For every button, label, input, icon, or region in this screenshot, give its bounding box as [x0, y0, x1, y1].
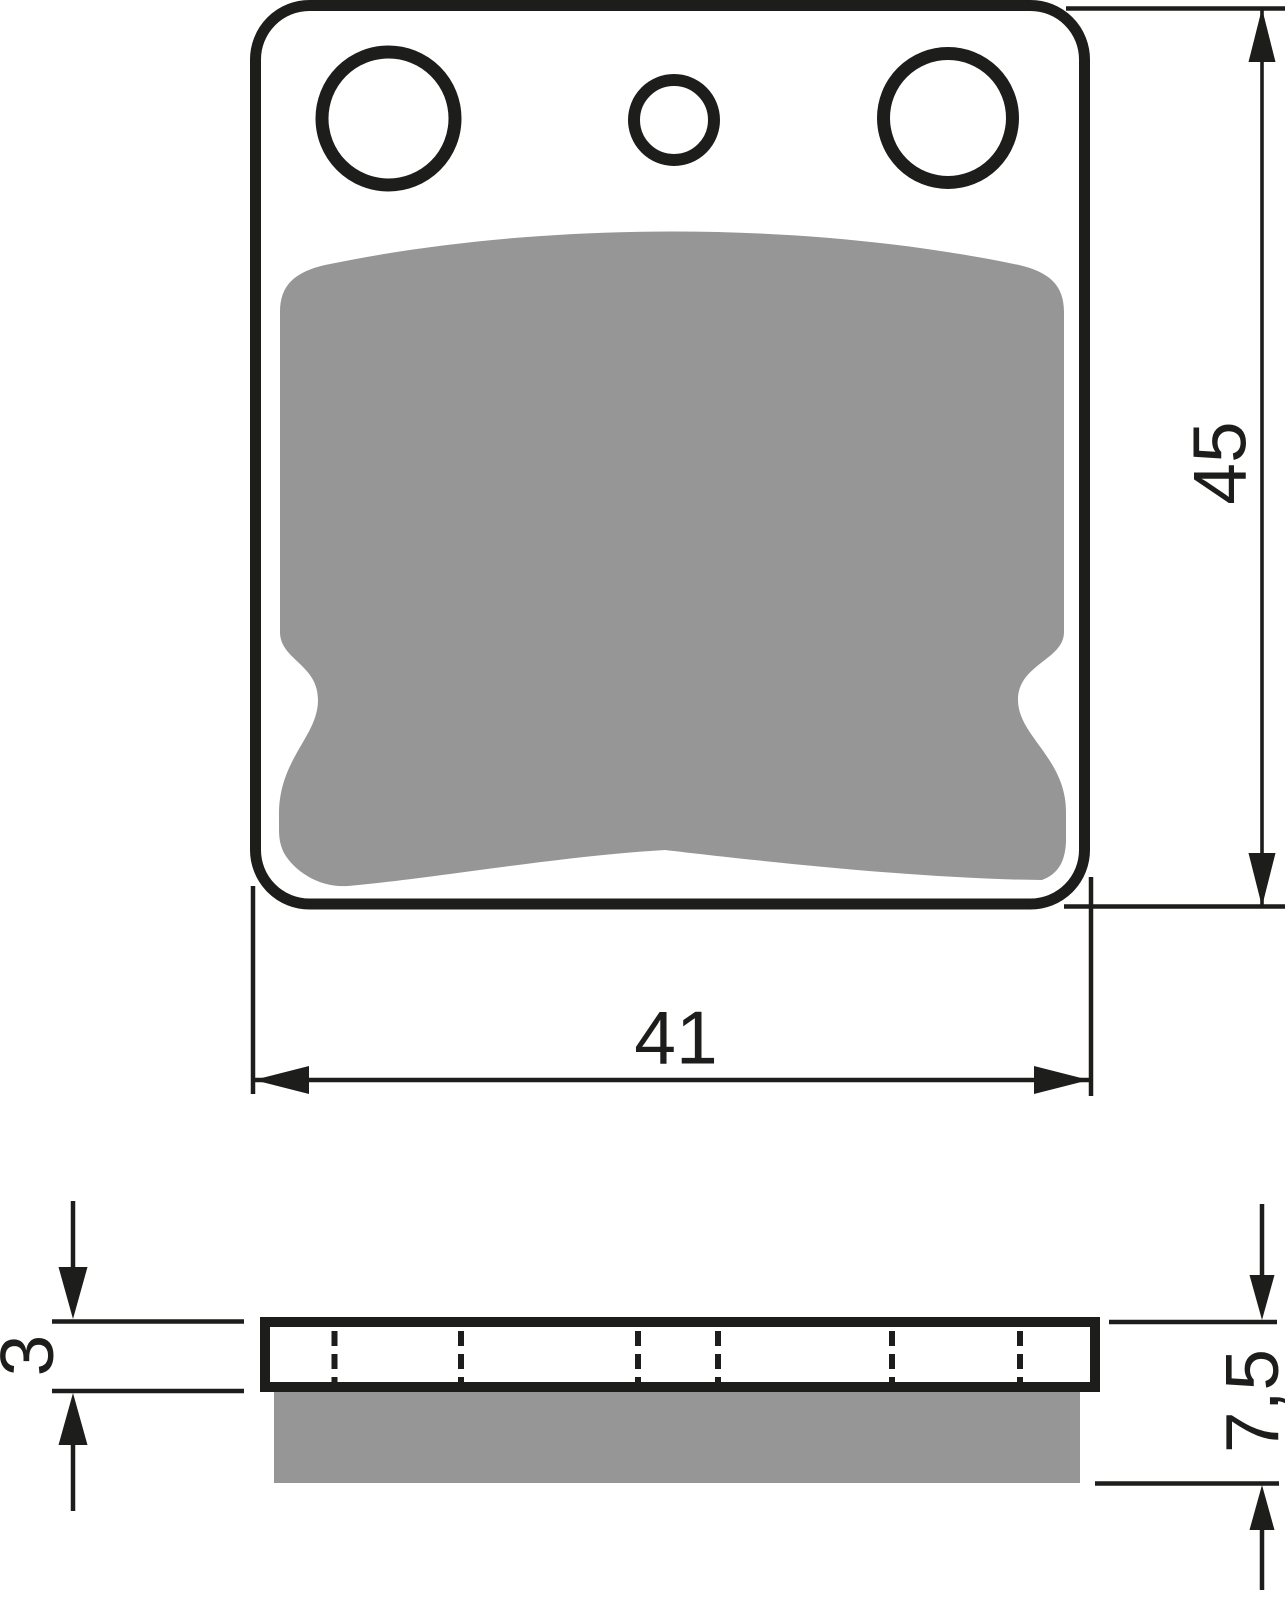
- svg-text:7,5: 7,5: [1210, 1349, 1285, 1453]
- svg-text:45: 45: [1178, 421, 1262, 504]
- svg-text:3: 3: [0, 1335, 69, 1377]
- svg-text:41: 41: [634, 996, 717, 1080]
